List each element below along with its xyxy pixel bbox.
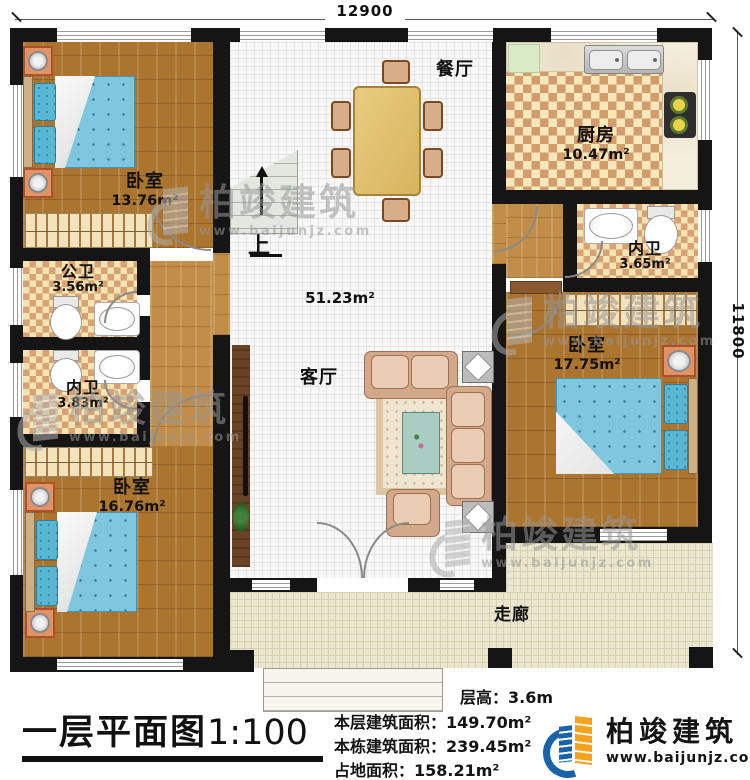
stat-floor-height: 层高：3.6m xyxy=(460,684,553,708)
room-label-bath-inner-left: 内卫 3.83m² xyxy=(33,379,133,412)
stat-label: 层高： xyxy=(460,688,508,707)
stat-label: 本栋建筑面积： xyxy=(334,737,446,756)
bed-headboard xyxy=(25,512,35,612)
dimension-tick xyxy=(706,12,717,23)
window xyxy=(10,85,23,177)
wall-kitchen-bottom xyxy=(492,190,698,204)
sofa-cushion xyxy=(451,464,485,499)
bed-pillow xyxy=(664,430,688,470)
wall-living-left xyxy=(213,335,230,672)
room-name: 厨房 xyxy=(546,126,646,147)
bed-headboard xyxy=(688,378,698,474)
floor-plan-canvas: 上 xyxy=(0,0,750,780)
kitchen-sink xyxy=(584,45,664,74)
window xyxy=(240,28,325,42)
room-name: 餐厅 xyxy=(423,60,487,81)
stat-label: 本层建筑面积： xyxy=(334,713,446,732)
dining-table xyxy=(353,86,421,196)
dining-chair xyxy=(331,148,351,178)
plan-title-text: 一层平面图 xyxy=(22,713,207,753)
bed xyxy=(556,378,698,474)
sofa-cushion xyxy=(451,428,485,463)
room-area-living: 51.23m² xyxy=(300,290,380,307)
window xyxy=(551,28,657,42)
sink-basin xyxy=(627,50,661,70)
room-name: 卧室 xyxy=(82,478,182,499)
dining-chair xyxy=(382,198,410,222)
bed-pillow xyxy=(34,83,56,121)
dimension-tick xyxy=(11,12,22,23)
bed xyxy=(23,76,135,168)
room-area: 16.76m² xyxy=(82,499,182,516)
stove-burner xyxy=(670,96,688,114)
wall-bath-divider xyxy=(23,337,150,350)
coffee-table xyxy=(402,412,440,474)
brand-site: www.baijunjz.com xyxy=(606,750,750,766)
bed-pillow xyxy=(664,384,688,424)
room-label-corridor: 走廊 xyxy=(478,606,546,626)
dining-chair xyxy=(331,101,351,131)
room-area: 51.23m² xyxy=(300,290,380,307)
stove xyxy=(664,92,696,138)
window xyxy=(440,580,474,590)
plan-title-scale: 1:100 xyxy=(207,713,308,753)
room-area: 3.56m² xyxy=(28,281,128,296)
bed-pillow xyxy=(36,566,58,606)
logo-building-orange xyxy=(575,716,592,765)
side-table xyxy=(462,501,494,533)
floor-corridor-upper xyxy=(506,543,713,592)
stat-building-area: 本栋建筑面积：239.45m² xyxy=(334,733,531,757)
sofa-cushion xyxy=(411,355,449,389)
window xyxy=(57,28,191,42)
window xyxy=(600,529,667,541)
room-name: 内卫 xyxy=(33,379,133,397)
nightstand xyxy=(25,482,55,512)
sofa-cushion xyxy=(393,493,431,525)
room-area: 3.65m² xyxy=(595,258,695,273)
wall-bath-side-3 xyxy=(137,402,150,434)
room-name: 卧室 xyxy=(95,172,195,193)
stat-label: 占地面积： xyxy=(334,761,414,780)
stat-floor-area: 本层建筑面积：149.70m² xyxy=(334,709,531,733)
wall-kitchen-left xyxy=(492,42,506,190)
brand-name: 柏竣建筑 xyxy=(606,718,750,746)
floor-hallway-mouth xyxy=(213,253,230,335)
bed-pillow xyxy=(36,520,58,560)
plan-title: 一层平面图1:100 xyxy=(22,704,342,752)
stat-value: 149.70m² xyxy=(446,713,531,732)
porch-column xyxy=(488,648,512,668)
plant xyxy=(233,502,249,532)
room-name: 卧室 xyxy=(537,336,637,357)
room-label-living: 客厅 xyxy=(287,368,351,389)
stairs-label-underline xyxy=(250,254,282,257)
window xyxy=(698,210,712,262)
nightstand xyxy=(25,608,55,638)
dining-chair xyxy=(382,60,410,84)
wardrobe xyxy=(25,447,153,477)
room-name: 公卫 xyxy=(28,263,128,281)
bed-pillow xyxy=(34,126,56,164)
room-label-bedroom-bottom-left: 卧室 16.76m² xyxy=(82,478,182,515)
brand-logo-icon xyxy=(546,712,600,770)
stairs-up-arrow xyxy=(260,170,263,215)
wall-bath-side-1 xyxy=(137,261,150,295)
logo-building-blue xyxy=(559,725,572,763)
room-name: 走廊 xyxy=(478,606,546,626)
dimension-right-value: 11800 xyxy=(729,301,747,361)
sofa-cushion xyxy=(371,355,409,389)
wall-bath-right-bottom xyxy=(563,278,698,292)
window xyxy=(408,28,493,42)
room-label-bath-public: 公卫 3.56m² xyxy=(28,263,128,296)
stat-footprint-area: 占地面积：158.21m² xyxy=(334,757,499,780)
bed xyxy=(25,512,137,612)
brand-logo: 柏竣建筑 www.baijunjz.com xyxy=(546,712,750,770)
wall-bath-left-bottom xyxy=(23,434,150,447)
room-area: 13.76m² xyxy=(95,193,195,210)
room-name: 内卫 xyxy=(595,240,695,258)
room-label-bedroom-top-left: 卧室 13.76m² xyxy=(95,172,195,209)
title-underline xyxy=(22,756,323,762)
dining-chair xyxy=(423,101,443,131)
dining-chair xyxy=(423,148,443,178)
wall-bedroom1-dining xyxy=(213,42,230,253)
window xyxy=(10,490,23,575)
bed-headboard xyxy=(23,76,33,168)
room-area: 10.47m² xyxy=(546,147,646,164)
window xyxy=(57,659,183,670)
sink-basin xyxy=(589,50,623,70)
tv xyxy=(243,396,248,496)
window xyxy=(252,580,290,590)
room-label-bath-inner-right: 内卫 3.65m² xyxy=(595,240,695,273)
stat-value: 3.6m xyxy=(508,688,553,707)
dimension-top-value: 12900 xyxy=(325,2,405,20)
room-area: 3.83m² xyxy=(33,397,133,412)
window xyxy=(10,268,23,325)
room-label-bedroom-right: 卧室 17.75m² xyxy=(537,336,637,373)
floor-corridor xyxy=(230,592,713,668)
nightstand xyxy=(23,46,53,76)
room-name: 客厅 xyxy=(287,368,351,389)
room-label-dining: 餐厅 xyxy=(423,60,487,81)
stove-burner xyxy=(670,116,688,134)
sofa-cushion xyxy=(451,392,485,427)
side-table xyxy=(462,351,494,383)
room-label-kitchen: 厨房 10.47m² xyxy=(546,126,646,163)
wall-bedroom1-bottom xyxy=(23,248,150,261)
wall-living-right xyxy=(492,264,506,578)
brand-text: 柏竣建筑 www.baijunjz.com xyxy=(606,718,750,766)
porch-column xyxy=(689,647,713,668)
porch-column xyxy=(230,650,254,672)
toilet xyxy=(50,296,82,340)
wardrobe xyxy=(565,294,698,326)
wardrobe xyxy=(25,213,153,248)
stat-value: 158.21m² xyxy=(414,761,499,780)
kitchen-mat xyxy=(508,44,540,73)
nightstand xyxy=(662,345,696,377)
stat-value: 239.45m² xyxy=(446,737,531,756)
window xyxy=(10,363,23,417)
window xyxy=(698,60,712,140)
room-area: 17.75m² xyxy=(537,357,637,374)
nightstand xyxy=(23,168,53,198)
